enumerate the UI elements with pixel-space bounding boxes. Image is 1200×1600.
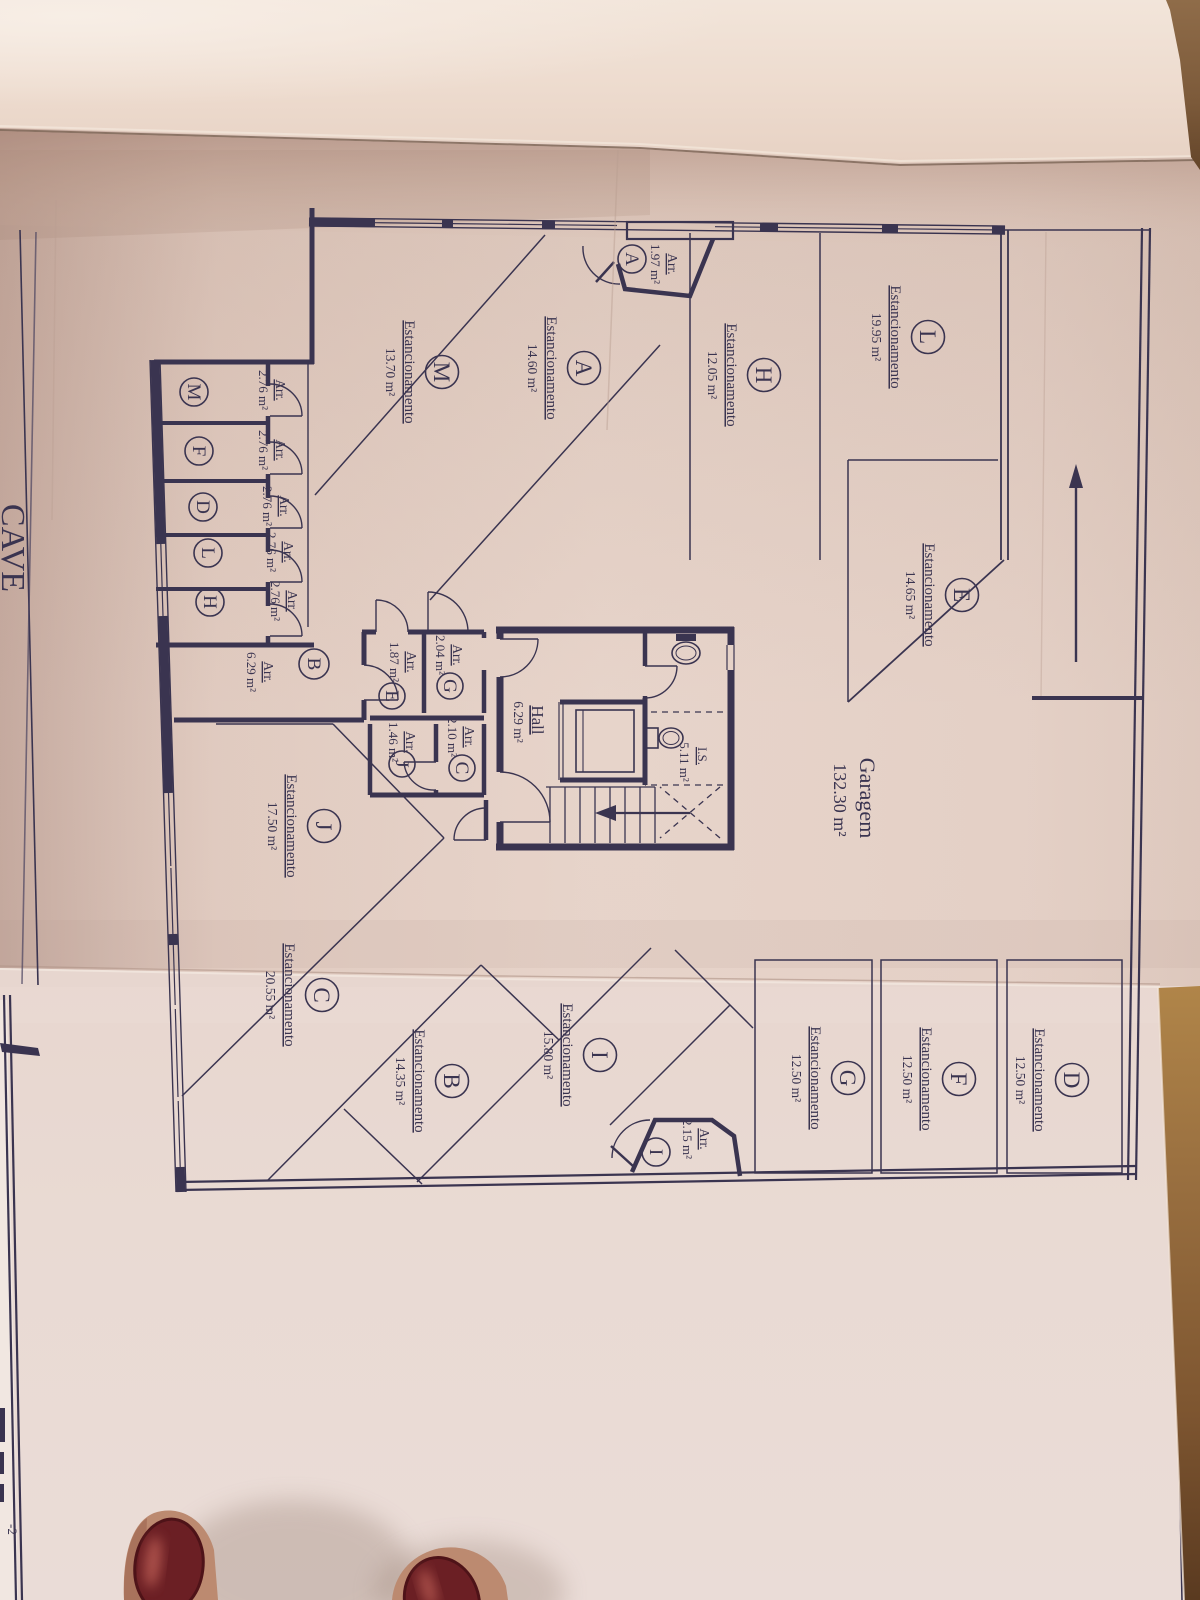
svg-text:2.76 m²: 2.76 m² — [260, 486, 275, 526]
svg-text:Estancionamento: Estancionamento — [807, 1026, 823, 1129]
svg-text:2.10 m²: 2.10 m² — [445, 717, 460, 757]
svg-text:Arr.: Arr. — [281, 541, 296, 562]
svg-text:Estancionamento: Estancionamento — [1031, 1028, 1047, 1131]
svg-text:J: J — [391, 760, 412, 767]
svg-text:14.65 m²: 14.65 m² — [903, 571, 918, 619]
svg-text:132.30 m²: 132.30 m² — [830, 763, 850, 836]
svg-text:Estancionamento: Estancionamento — [921, 543, 937, 646]
svg-text:I.S.: I.S. — [695, 747, 710, 765]
svg-text:Arr.: Arr. — [403, 731, 418, 752]
svg-text:2.04 m²: 2.04 m² — [433, 635, 448, 675]
svg-text:Hall: Hall — [528, 705, 547, 735]
svg-text:2.15 m²: 2.15 m² — [680, 1119, 695, 1159]
svg-text:E: E — [949, 588, 974, 602]
svg-text:Estancionamento: Estancionamento — [918, 1027, 934, 1130]
svg-text:I: I — [645, 1149, 666, 1155]
svg-text:19.95 m²: 19.95 m² — [869, 313, 884, 361]
svg-text:Estancionamento: Estancionamento — [559, 1003, 575, 1106]
svg-text:F: F — [946, 1073, 971, 1086]
svg-text:2.76 m²: 2.76 m² — [256, 370, 271, 410]
svg-text:Arr.: Arr. — [665, 253, 680, 274]
svg-text:14.35 m²: 14.35 m² — [393, 1057, 408, 1105]
svg-text:12.05 m²: 12.05 m² — [705, 351, 720, 399]
svg-text:Arr.: Arr. — [450, 644, 465, 665]
svg-text:Estancionamento: Estancionamento — [723, 323, 739, 426]
svg-text:6.29 m²: 6.29 m² — [244, 652, 259, 692]
svg-text:Estancionamento: Estancionamento — [283, 774, 299, 877]
svg-text:Arr.: Arr. — [273, 439, 288, 460]
svg-text:G: G — [439, 679, 460, 693]
svg-text:A: A — [621, 252, 642, 266]
svg-text:5.11 m²: 5.11 m² — [677, 742, 692, 782]
svg-text:E: E — [381, 690, 402, 702]
svg-text:H: H — [751, 367, 776, 384]
svg-text:1.46 m²: 1.46 m² — [386, 722, 401, 762]
svg-text:C: C — [309, 987, 334, 1002]
svg-text:20.55 m²: 20.55 m² — [263, 971, 278, 1019]
svg-text:D: D — [192, 500, 213, 514]
svg-text:Arr.: Arr. — [285, 590, 300, 611]
svg-text:2.76 m²: 2.76 m² — [256, 430, 271, 470]
svg-text:C: C — [451, 762, 472, 775]
svg-text:15.80 m²: 15.80 m² — [541, 1031, 556, 1079]
svg-text:B: B — [303, 658, 324, 671]
svg-text:M: M — [429, 362, 454, 382]
svg-text:Arr.: Arr. — [462, 726, 477, 747]
svg-text:Arr.: Arr. — [404, 651, 419, 672]
svg-text:Arr.: Arr. — [273, 379, 288, 400]
svg-text:H: H — [199, 595, 220, 609]
svg-text:L: L — [197, 547, 218, 559]
svg-text:17.50 m²: 17.50 m² — [265, 802, 280, 850]
svg-text:13.70 m²: 13.70 m² — [383, 348, 398, 396]
svg-text:Estancionamento: Estancionamento — [887, 285, 903, 388]
svg-text:A: A — [571, 360, 596, 377]
svg-text:Estancionamento: Estancionamento — [401, 320, 417, 423]
svg-text:Arr.: Arr. — [697, 1128, 712, 1149]
svg-text:6.29 m²: 6.29 m² — [511, 701, 526, 743]
svg-text:B: B — [439, 1073, 464, 1088]
svg-text:-2: -2 — [5, 1524, 20, 1535]
svg-text:Estancionamento: Estancionamento — [281, 943, 297, 1046]
svg-text:Arr.: Arr. — [261, 661, 276, 682]
svg-text:G: G — [835, 1070, 860, 1087]
svg-text:Garagem: Garagem — [855, 758, 880, 839]
svg-text:L: L — [915, 330, 940, 344]
svg-text:Arr.: Arr. — [277, 495, 292, 516]
svg-text:12.50 m²: 12.50 m² — [1013, 1056, 1028, 1104]
svg-text:Estancionamento: Estancionamento — [543, 316, 559, 419]
svg-text:F: F — [188, 446, 209, 457]
svg-text:12.50 m²: 12.50 m² — [789, 1054, 804, 1102]
svg-text:14.60 m²: 14.60 m² — [525, 344, 540, 392]
svg-text:I: I — [587, 1051, 612, 1059]
svg-text:D: D — [1059, 1072, 1084, 1089]
svg-text:Estancionamento: Estancionamento — [411, 1029, 427, 1132]
svg-text:2.76 m²: 2.76 m² — [264, 532, 279, 572]
svg-text:2.76 m²: 2.76 m² — [268, 581, 283, 621]
svg-text:1.87 m²: 1.87 m² — [387, 642, 402, 682]
svg-text:J: J — [311, 822, 336, 831]
svg-text:1.97 m²: 1.97 m² — [648, 244, 663, 284]
svg-text:12.50 m²: 12.50 m² — [900, 1055, 915, 1103]
svg-text:M: M — [183, 384, 204, 401]
